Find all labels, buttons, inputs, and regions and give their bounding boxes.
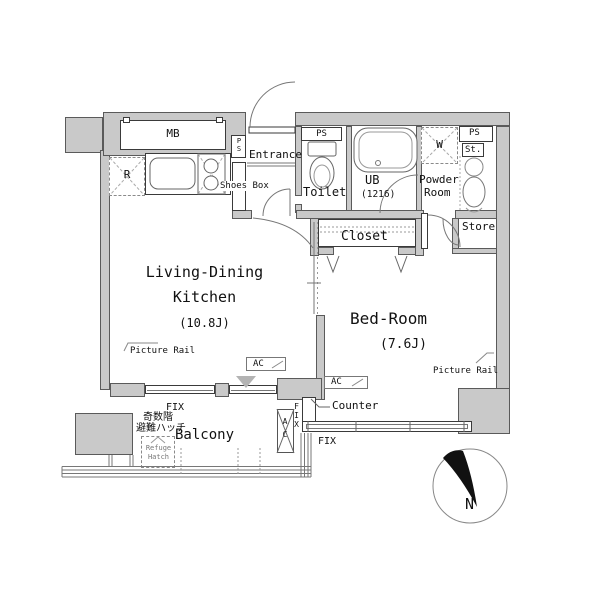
pipe-shaft-right-label: PS — [469, 128, 480, 138]
fix-label-vertical: FIX — [293, 402, 300, 429]
ac-leader-ldk — [272, 361, 283, 368]
fix-window-ticks — [308, 421, 464, 432]
picture-rail-label-ldk: Picture Rail — [130, 346, 195, 356]
meter-box-label: MB — [120, 128, 226, 140]
toilet-fixture-icon — [308, 142, 336, 189]
ldk-label-1: Living-Dining — [137, 264, 272, 281]
balcony-label: Balcony — [175, 428, 234, 444]
bedroom-label: Bed-Room — [350, 310, 427, 328]
picture-rail-leader-bedroom — [476, 353, 494, 363]
entry-direction-marker — [236, 376, 256, 388]
refrigerator-label: R — [109, 169, 145, 181]
bedroom-door-swing — [428, 215, 460, 247]
powder-room-label-1: Powder — [419, 174, 459, 186]
picture-rail-label-bedroom: Picture Rail — [433, 366, 498, 376]
toilet-label: Toilet — [303, 186, 346, 199]
bathtub-icon — [354, 128, 417, 172]
bedroom-area-label: (7.6J) — [380, 338, 427, 353]
powder-room-label-2: Room — [424, 187, 451, 199]
ac-unit-label-vertical: AC — [281, 415, 289, 441]
kitchen-sink-icon — [150, 158, 195, 189]
shoes-box-label: Shoes Box — [219, 181, 270, 191]
bath-label: UB — [365, 174, 379, 187]
refuge-hatch-chevron — [151, 437, 165, 443]
pipe-shaft-toilet-label: PS — [301, 129, 342, 139]
entrance-step-lines — [247, 163, 295, 166]
washer-label: W — [421, 139, 458, 151]
fix-label-bedroom: FIX — [318, 436, 336, 447]
ldk-label-2: Kitchen — [137, 289, 272, 306]
entrance-label: Entrance — [249, 149, 302, 161]
counter-leader-line — [311, 399, 330, 407]
ldk-area-label: (10.8J) — [137, 317, 272, 330]
storage-st-label: St. — [465, 145, 481, 155]
counter-label: Counter — [332, 400, 378, 412]
plan-linework — [0, 0, 602, 600]
closet-folding-door-marks — [327, 256, 407, 272]
entrance-door — [249, 82, 295, 133]
refuge-hatch-en-label: Refuge Hatch — [143, 444, 174, 461]
floor-plan: MB PS Entrance Shoes Box R PS Toilet UB … — [0, 0, 602, 600]
refuge-floor-jp-label: 奇数階 — [143, 412, 173, 423]
ldk-door-swing — [253, 218, 313, 248]
closet-label: Closet — [341, 230, 388, 245]
pipe-shaft-left-label: PS — [235, 137, 243, 153]
ac-label-bedroom: AC — [331, 377, 342, 387]
compass-north-label: N — [465, 496, 474, 513]
ac-label-ldk: AC — [253, 359, 264, 369]
store-label: Store — [461, 221, 496, 233]
ldk-bedroom-boundary — [307, 222, 321, 314]
washbasin-icon — [460, 156, 485, 212]
toilet-door — [263, 189, 290, 216]
ac-leader-bedroom — [352, 379, 363, 386]
bath-size-label: (1216) — [361, 190, 395, 201]
